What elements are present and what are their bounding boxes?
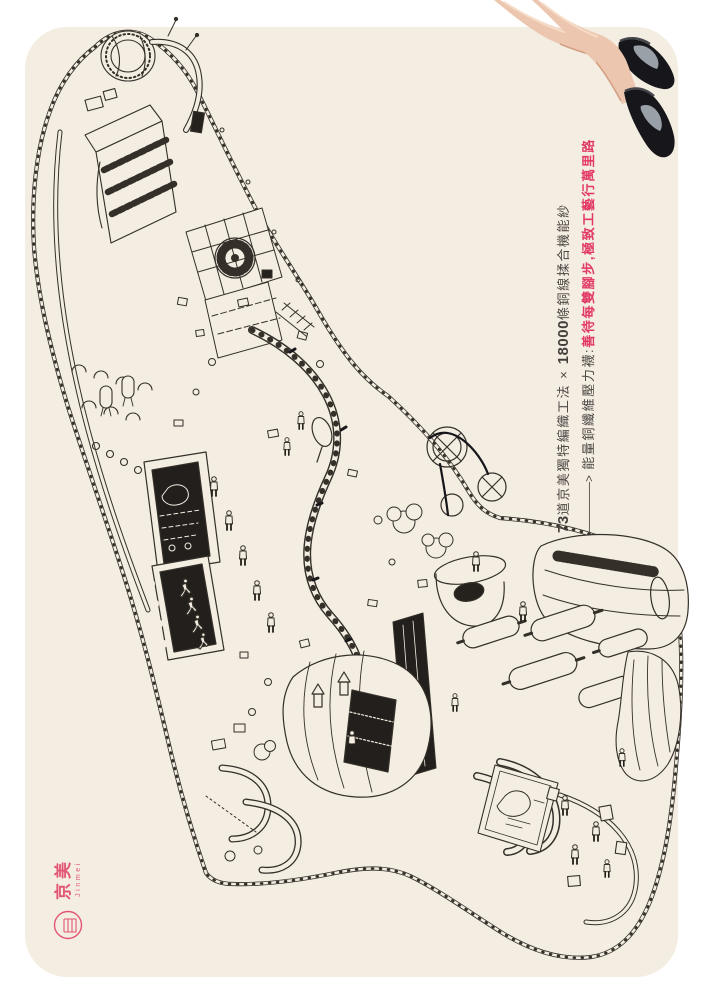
- brand-name-zh: 京美: [55, 858, 72, 900]
- headline-line2-text: 能量銅纖維壓力襪:: [581, 348, 596, 475]
- headline-line1-text2: 條銅線揉合機能紗: [556, 203, 571, 320]
- arrow-dash: ──────>: [582, 475, 596, 533]
- brand-seal: 京美 Jinmei: [52, 858, 84, 941]
- headline-line1: 73道京美獨特編織工法 × 18000條銅線揉合機能紗: [551, 138, 576, 533]
- headline-line2: ──────> 能量銅纖維壓力襪:善待每雙腳步,極致工藝行萬里路: [576, 138, 602, 533]
- headline-number-73: 73: [555, 515, 572, 533]
- headline-vertical-text: 73道京美獨特編織工法 × 18000條銅線揉合機能紗 ──────> 能量銅纖…: [551, 138, 602, 533]
- seal-text: 京美 Jinmei: [55, 858, 82, 900]
- headline-line1-text: 道京美獨特編織工法 ×: [556, 364, 571, 515]
- brand-name-en: Jinmei: [75, 861, 82, 897]
- seal-circle-icon: [52, 909, 84, 941]
- front-sock: [624, 89, 675, 158]
- headline-accent-text: 善待每雙腳步,極致工藝行萬里路: [581, 138, 596, 348]
- poster-page: 73道京美獨特編織工法 × 18000條銅線揉合機能紗 ──────> 能量銅纖…: [0, 0, 707, 1000]
- headline-number-18000: 18000: [555, 320, 572, 364]
